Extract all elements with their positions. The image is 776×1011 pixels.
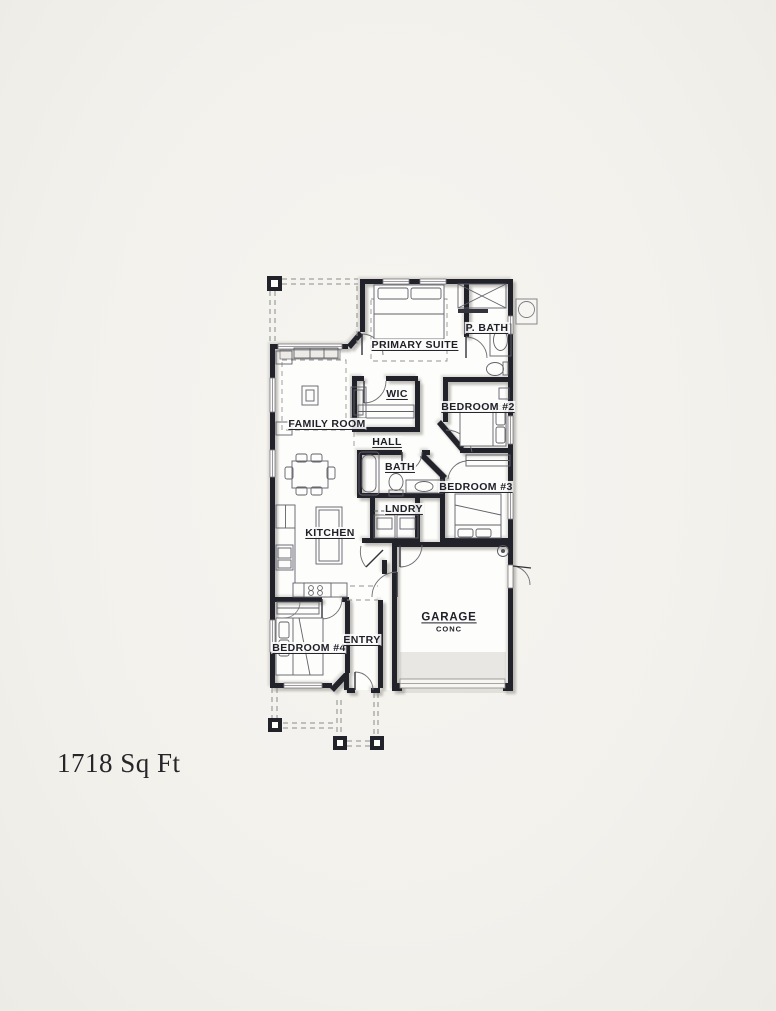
outdoor-unit	[516, 299, 537, 324]
room-label-p-bath: P. BATH	[465, 322, 510, 334]
garage-floor-note: CONC	[435, 626, 463, 635]
room-label-hall: HALL	[371, 436, 403, 448]
garage-door	[400, 679, 505, 688]
primary-bed	[374, 285, 444, 339]
room-label-bedroom-2: BEDROOM #2	[440, 401, 515, 413]
room-label-family-room: FAMILY ROOM	[287, 418, 366, 430]
floor-plan-page: PRIMARY SUITE P. BATH WIC BEDROOM #2 FAM…	[0, 0, 776, 1011]
room-label-bedroom-4: BEDROOM #4	[271, 642, 346, 654]
room-label-bath: BATH	[384, 461, 416, 473]
room-label-entry: ENTRY	[342, 634, 381, 646]
room-label-primary-suite: PRIMARY SUITE	[371, 339, 460, 351]
room-label-wic: WIC	[385, 388, 409, 400]
room-label-laundry: LNDRY	[384, 503, 424, 515]
room-label-kitchen: KITCHEN	[304, 527, 355, 539]
area-caption: 1718 Sq Ft	[57, 748, 181, 779]
room-label-bedroom-3: BEDROOM #3	[438, 481, 513, 493]
room-label-garage: GARAGE	[420, 611, 477, 624]
